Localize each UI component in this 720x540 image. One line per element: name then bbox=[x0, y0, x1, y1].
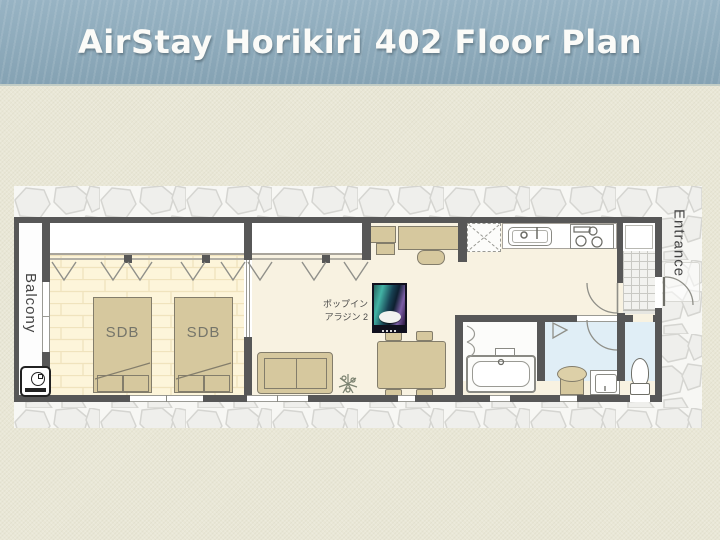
shower-icon bbox=[553, 323, 567, 338]
folding-door-icon bbox=[467, 326, 475, 358]
bed-fold-lines bbox=[95, 363, 231, 379]
slide: AirStay Horikiri 402 Floor Plan bbox=[0, 0, 720, 540]
refrigerator-cross bbox=[469, 225, 499, 250]
plant-icon bbox=[339, 374, 357, 393]
door-swing-icon bbox=[587, 277, 693, 350]
title-banner: AirStay Horikiri 402 Floor Plan bbox=[0, 0, 720, 86]
stove-burners bbox=[574, 227, 602, 247]
page-title: AirStay Horikiri 402 Floor Plan bbox=[78, 23, 642, 61]
faucet-icon bbox=[521, 227, 537, 239]
floor-plan: SDB SDB ポップイン アラジン 2 bbox=[14, 186, 702, 428]
curtain-icon bbox=[52, 262, 368, 280]
small-faucets bbox=[499, 360, 606, 392]
plan-glyphs bbox=[14, 186, 702, 428]
